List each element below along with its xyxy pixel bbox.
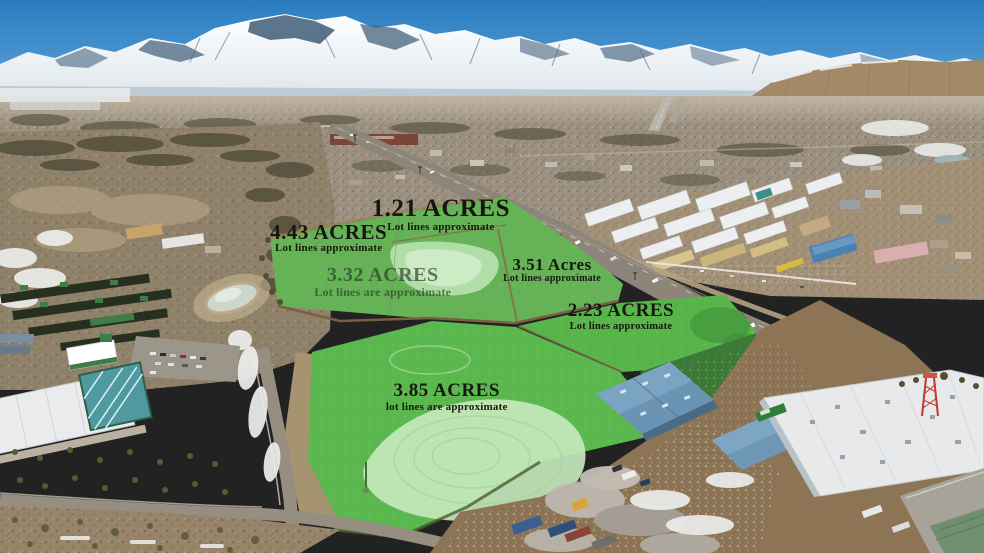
distant-snowfield <box>0 88 130 102</box>
scene-svg <box>0 0 984 553</box>
aerial-listing-photo: 1.21 ACRES Lot lines approximate 4.43 AC… <box>0 0 984 553</box>
